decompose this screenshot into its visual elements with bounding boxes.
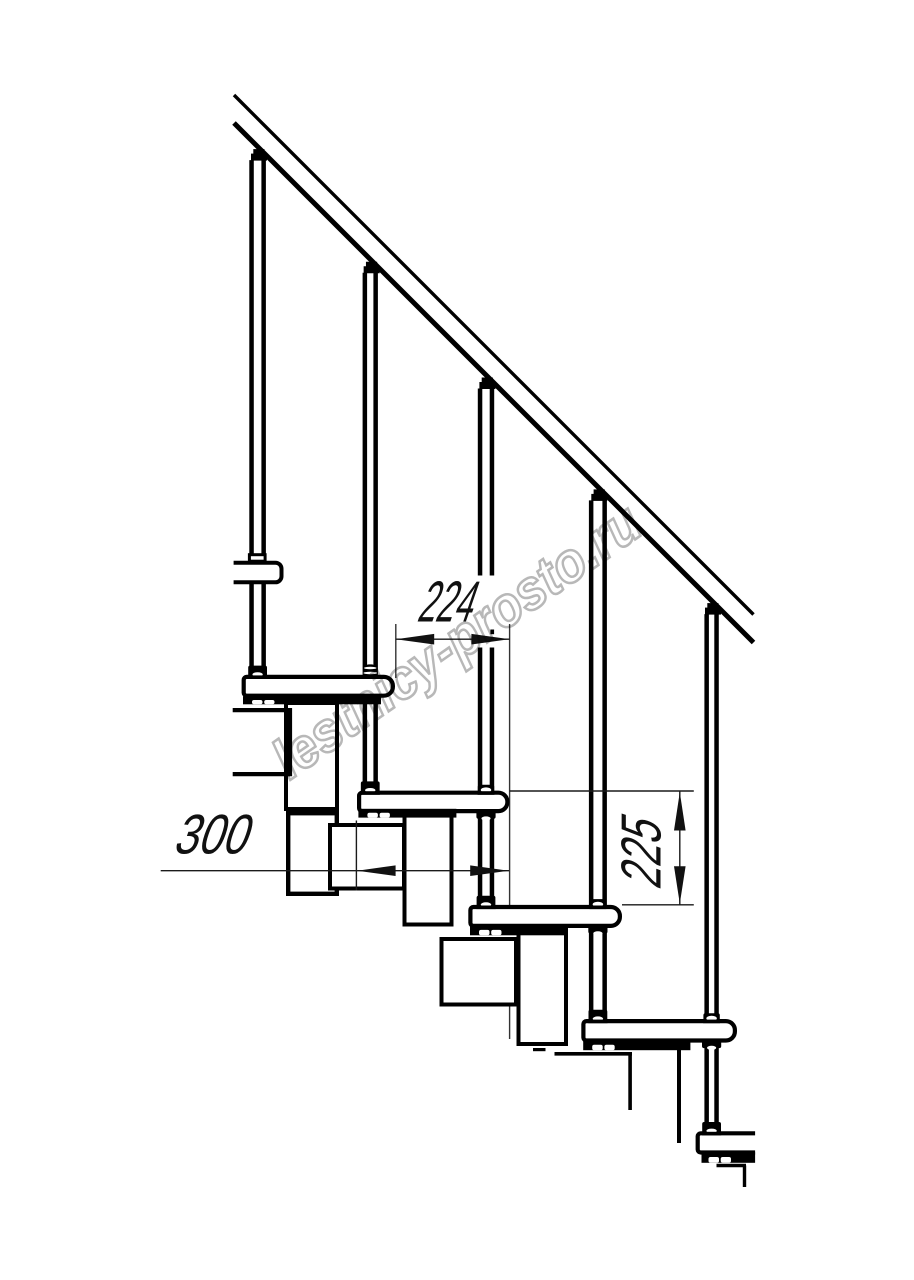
svg-text:300: 300: [168, 804, 262, 866]
svg-text:225: 225: [610, 806, 673, 895]
svg-text:lestnicy-prosto.ru: lestnicy-prosto.ru: [260, 490, 652, 790]
